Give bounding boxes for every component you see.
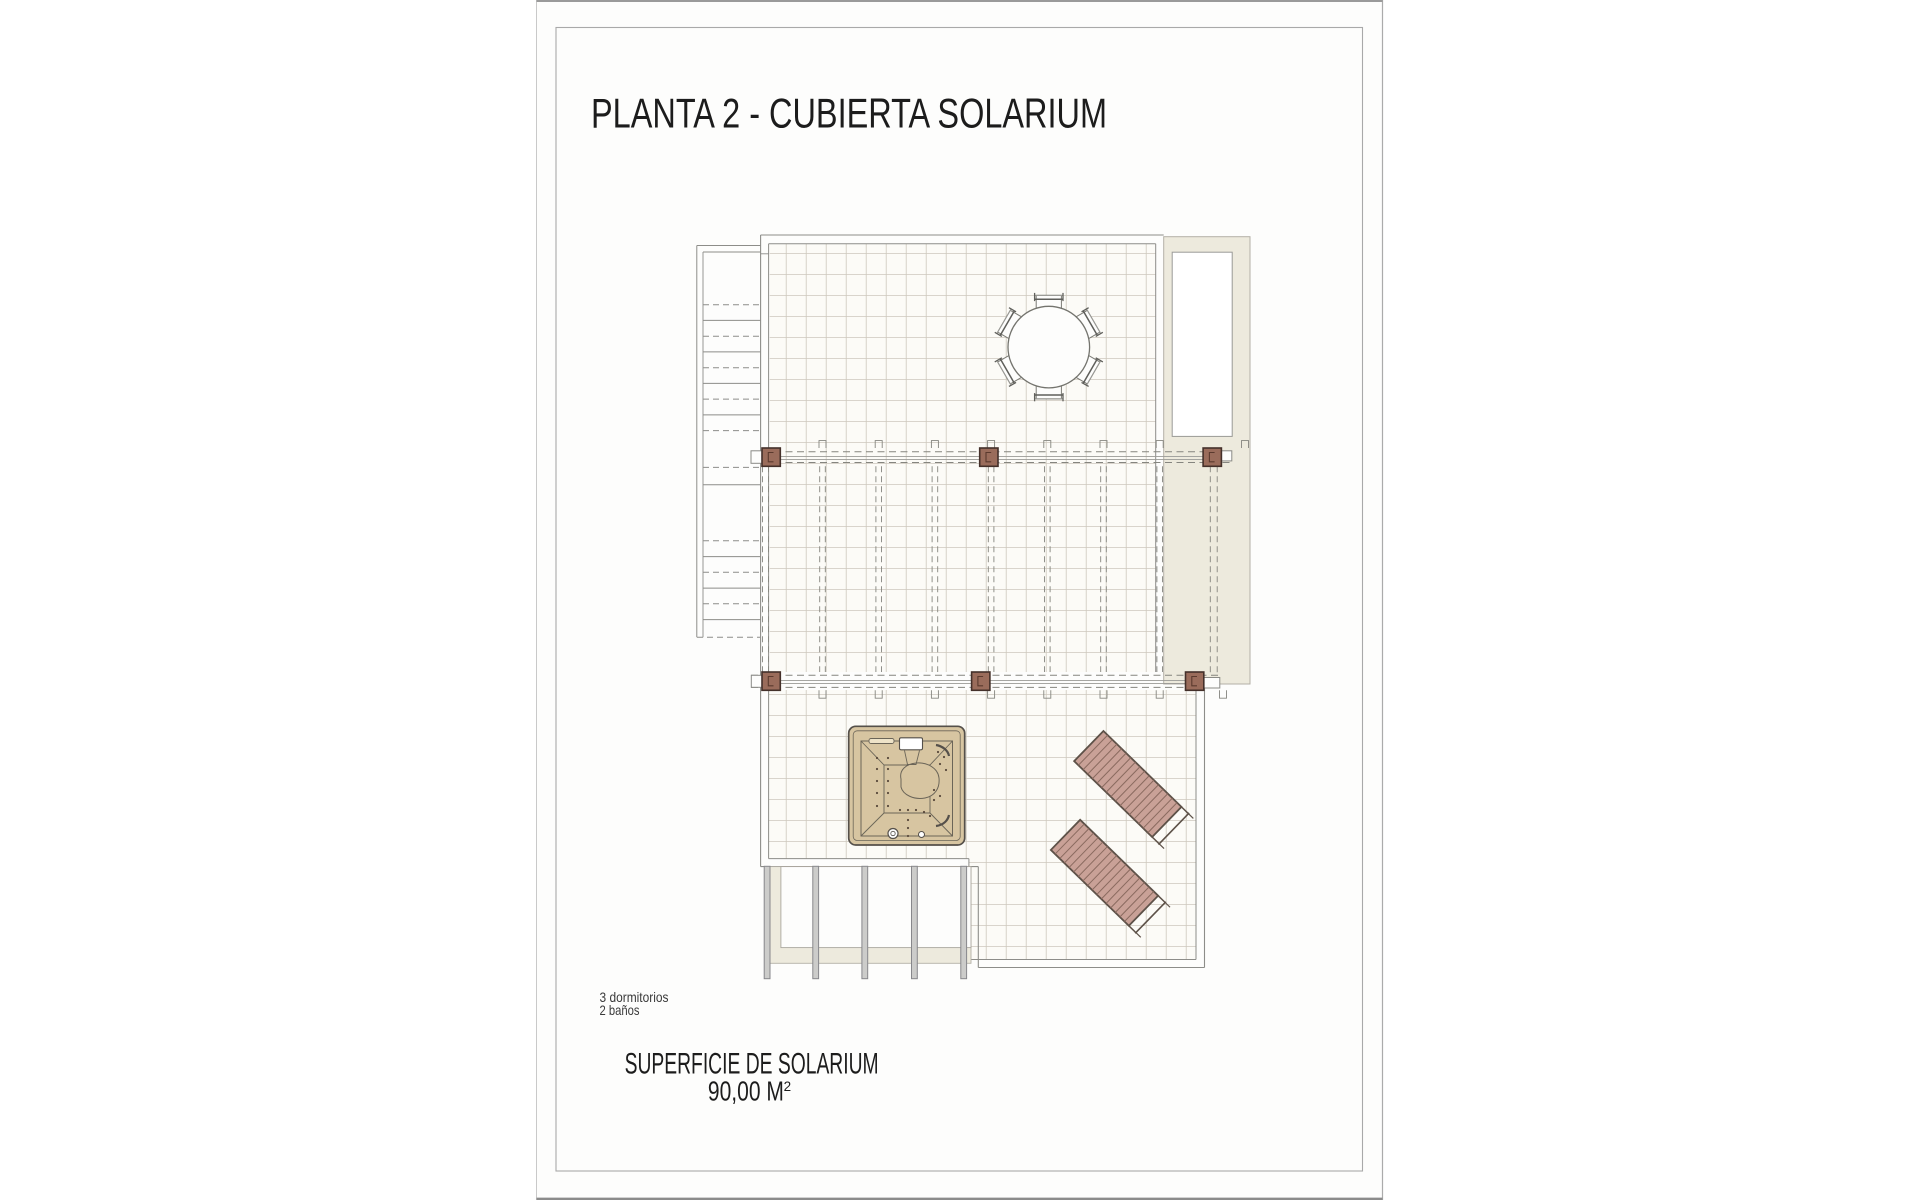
svg-text:2: 2: [784, 1079, 792, 1094]
svg-text:PLANTA 2 - CUBIERTA SOLARIUM: PLANTA 2 - CUBIERTA SOLARIUM: [591, 90, 1107, 137]
svg-text:2 baños: 2 baños: [600, 1002, 640, 1018]
svg-text:90,00 M: 90,00 M: [708, 1075, 784, 1106]
